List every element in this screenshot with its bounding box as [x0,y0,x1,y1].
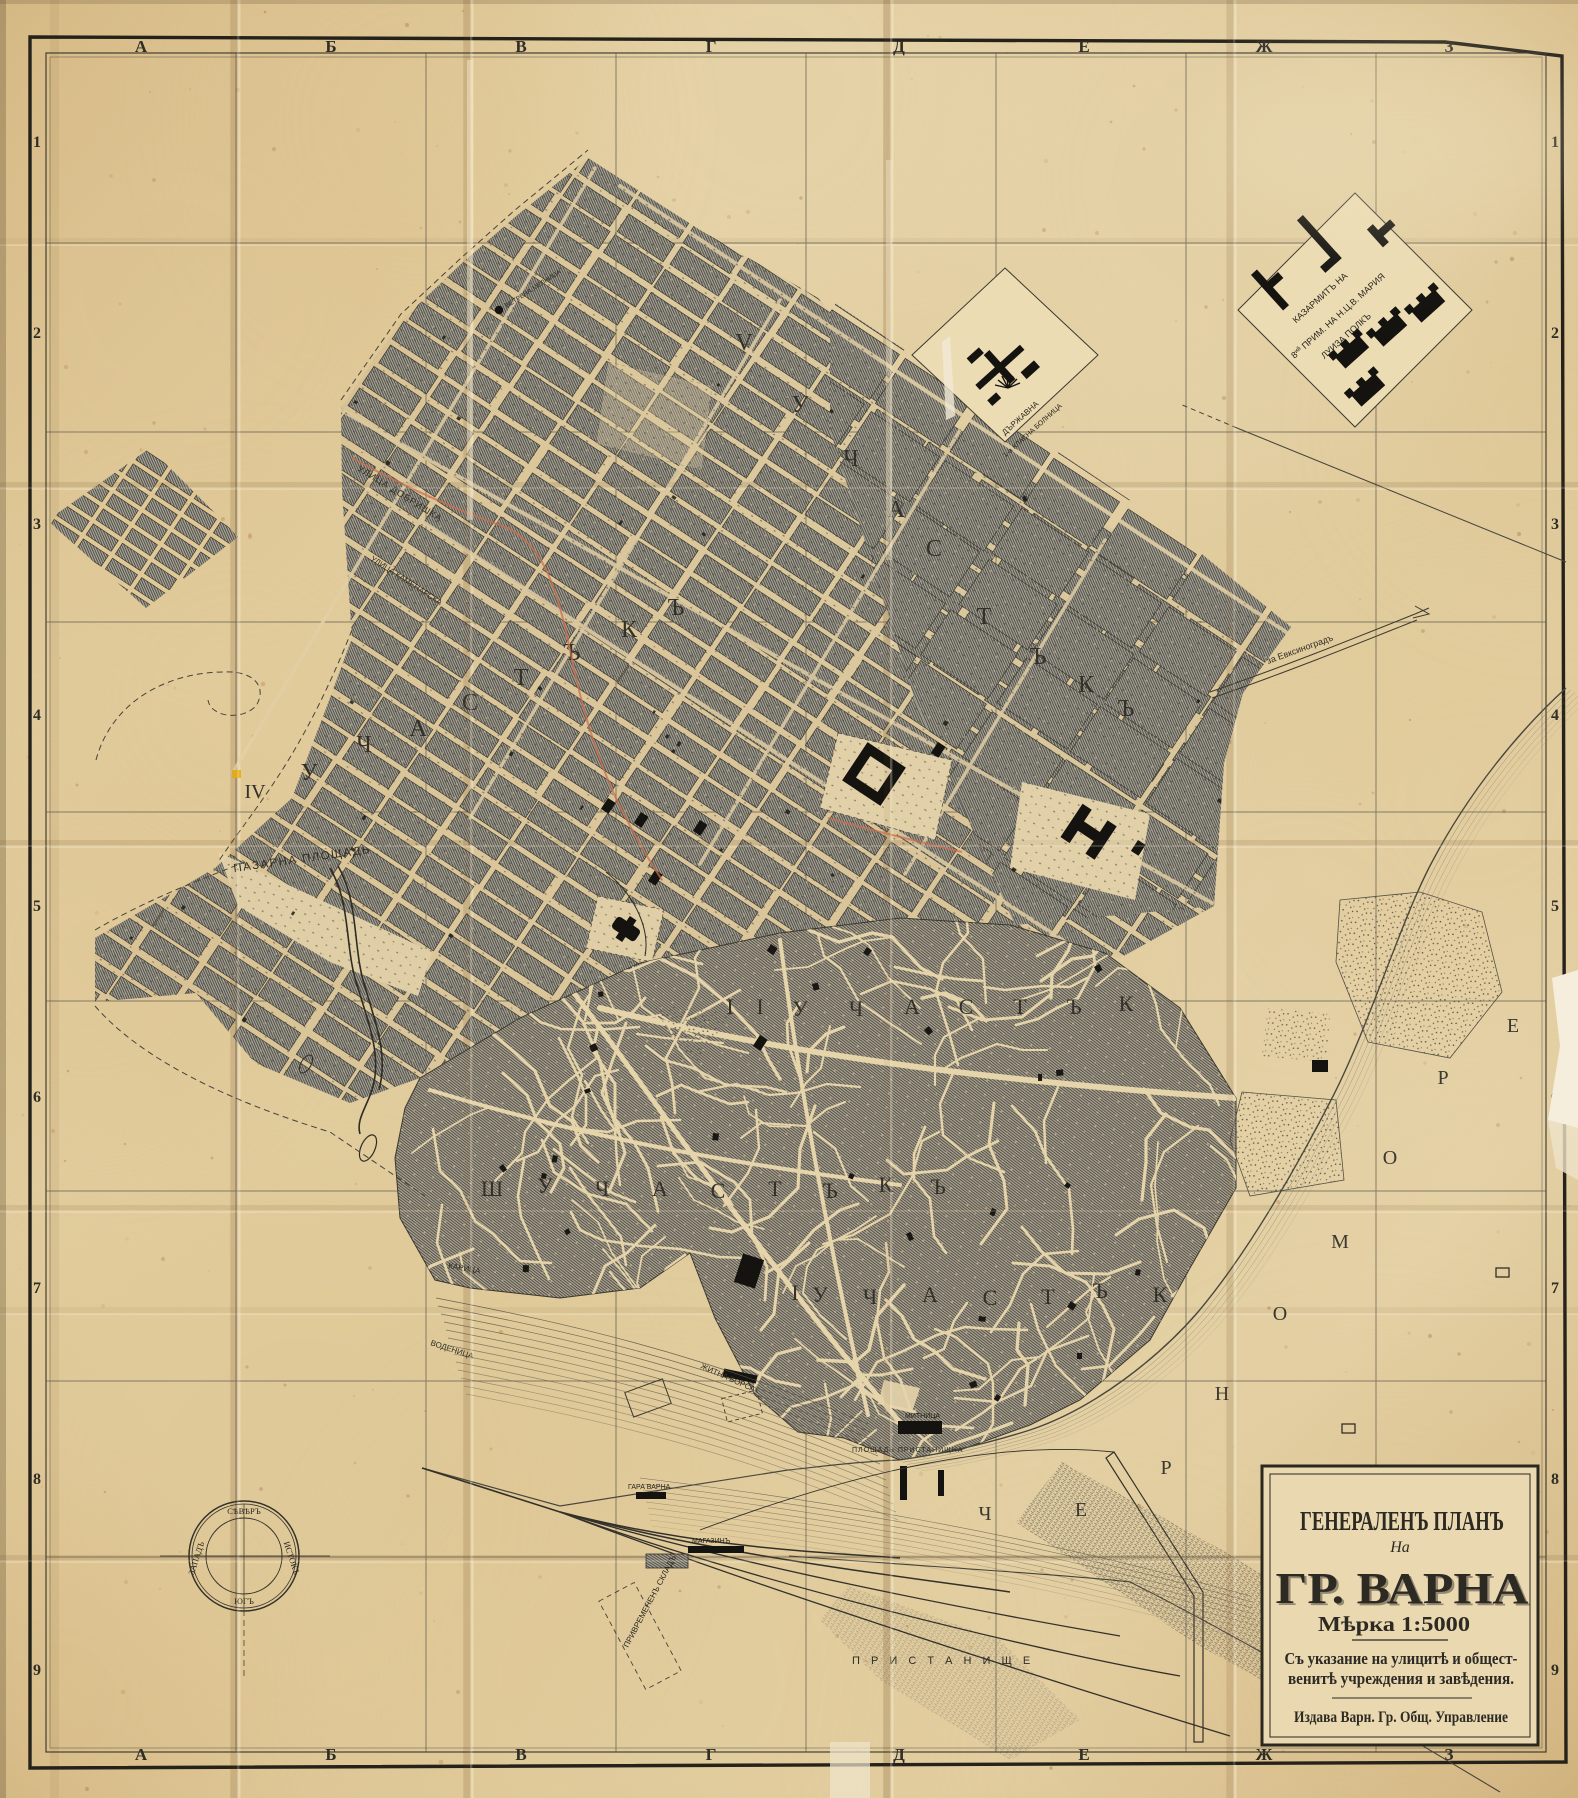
svg-text:Д: Д [893,37,905,56]
svg-text:О: О [1383,1147,1397,1169]
svg-text:Е: Е [1507,1015,1519,1037]
svg-text:8: 8 [1551,1471,1559,1488]
svg-text:3: 3 [33,516,41,533]
svg-text:Ъ: Ъ [668,595,685,621]
svg-text:Т: Т [977,604,992,630]
svg-text:К: К [1078,672,1095,698]
svg-text:Мѣрка 1:5000: Мѣрка 1:5000 [1318,1612,1470,1636]
svg-text:Е: Е [1078,1745,1089,1764]
svg-text:7: 7 [1551,1280,1559,1297]
svg-text:Д: Д [893,1745,905,1764]
svg-text:Т: Т [514,665,529,691]
svg-text:Р: Р [1437,1067,1448,1089]
svg-text:С: С [926,536,942,562]
svg-text:Т: Т [768,1176,782,1201]
svg-text:П Р И С Т А Н И Щ Е: П Р И С Т А Н И Щ Е [852,1655,1034,1667]
svg-text:М: М [1331,1231,1349,1253]
svg-text:ПЛОЩАДЬ ПРИСТАНИЩНА: ПЛОЩАДЬ ПРИСТАНИЩНА [852,1447,963,1454]
svg-text:О: О [1273,1303,1287,1325]
svg-text:7: 7 [33,1280,41,1297]
svg-text:МИТНИЦА: МИТНИЦА [905,1413,940,1420]
svg-text:3: 3 [1551,516,1559,533]
svg-text:ГЕНЕРАЛЕНЪ ПЛАНЪ: ГЕНЕРАЛЕНЪ ПЛАНЪ [1300,1506,1504,1536]
svg-text:2: 2 [33,325,41,342]
svg-text:У: У [812,1282,828,1307]
svg-text:І: І [756,994,763,1019]
svg-text:С: С [983,1285,998,1310]
svg-text:С: С [711,1178,726,1203]
svg-text:Ъ: Ъ [930,1174,946,1199]
svg-text:Ж: Ж [1256,1745,1273,1764]
svg-text:Е: Е [1075,1499,1087,1521]
svg-text:Съ указание на улицитѣ и общес: Съ указание на улицитѣ и общест- [1285,1649,1518,1668]
svg-text:А: А [135,37,148,56]
svg-text:А: А [652,1176,668,1201]
svg-text:Ч: Ч [595,1176,609,1201]
svg-text:Г: Г [706,37,717,56]
svg-text:Т: Т [1013,994,1027,1019]
svg-text:2: 2 [1551,325,1559,342]
svg-text:6: 6 [33,1089,41,1106]
svg-text:У: У [792,392,809,418]
svg-text:А: А [904,994,920,1019]
svg-text:Ъ: Ъ [1092,1278,1108,1303]
svg-text:А: А [409,716,427,742]
svg-text:Ч: Ч [843,446,859,472]
svg-text:Ч: Ч [979,1503,992,1525]
svg-text:9: 9 [1551,1662,1559,1679]
svg-text:Ъ: Ъ [1118,696,1135,722]
svg-text:Б: Б [325,37,336,56]
svg-text:Г: Г [706,1745,717,1764]
svg-text:І: І [726,994,733,1019]
svg-text:5: 5 [1551,898,1559,915]
svg-text:V: V [735,330,753,356]
svg-text:5: 5 [33,898,41,915]
svg-text:Ч: Ч [863,1284,877,1309]
svg-text:В: В [515,37,526,56]
svg-text:К: К [621,617,638,643]
svg-text:8: 8 [33,1471,41,1488]
svg-text:У: У [792,996,808,1021]
svg-text:К: К [1119,991,1134,1016]
svg-text:1: 1 [33,134,41,151]
svg-text:ГАРА ВАРНА: ГАРА ВАРНА [628,1484,671,1491]
svg-text:Р: Р [1160,1457,1171,1479]
svg-text:С: С [959,994,974,1019]
svg-text:А: А [135,1745,148,1764]
svg-text:ІV: ІV [244,781,266,803]
svg-text:На: На [1389,1539,1410,1556]
svg-text:4: 4 [33,707,41,724]
svg-text:Издава Варн. Гр. Общ. Управлен: Издава Варн. Гр. Общ. Управление [1294,1709,1508,1726]
svg-text:ГР. ВАРНА: ГР. ВАРНА [1276,1564,1529,1613]
svg-text:МАГАЗИНЪ: МАГАЗИНЪ [692,1538,731,1545]
svg-text:Ш: Ш [481,1176,503,1201]
svg-text:9: 9 [33,1662,41,1679]
svg-text:Е: Е [1078,37,1089,56]
svg-text:І: І [791,1280,798,1305]
svg-text:Б: Б [325,1745,336,1764]
svg-text:А: А [922,1282,938,1307]
svg-text:венитѣ учреждения и завѣдения.: венитѣ учреждения и завѣдения. [1288,1669,1514,1688]
svg-text:Ъ: Ъ [1066,994,1082,1019]
svg-text:Ъ: Ъ [1030,644,1047,670]
svg-text:У: У [301,760,318,786]
svg-text:К: К [1153,1282,1168,1307]
svg-text:В: В [515,1745,526,1764]
svg-text:Ж: Ж [1256,37,1273,56]
svg-text:Т: Т [1041,1284,1055,1309]
svg-text:Ъ: Ъ [822,1178,838,1203]
svg-text:Ч: Ч [356,732,372,758]
svg-text:Ч: Ч [849,996,863,1021]
svg-text:У: У [537,1173,553,1198]
